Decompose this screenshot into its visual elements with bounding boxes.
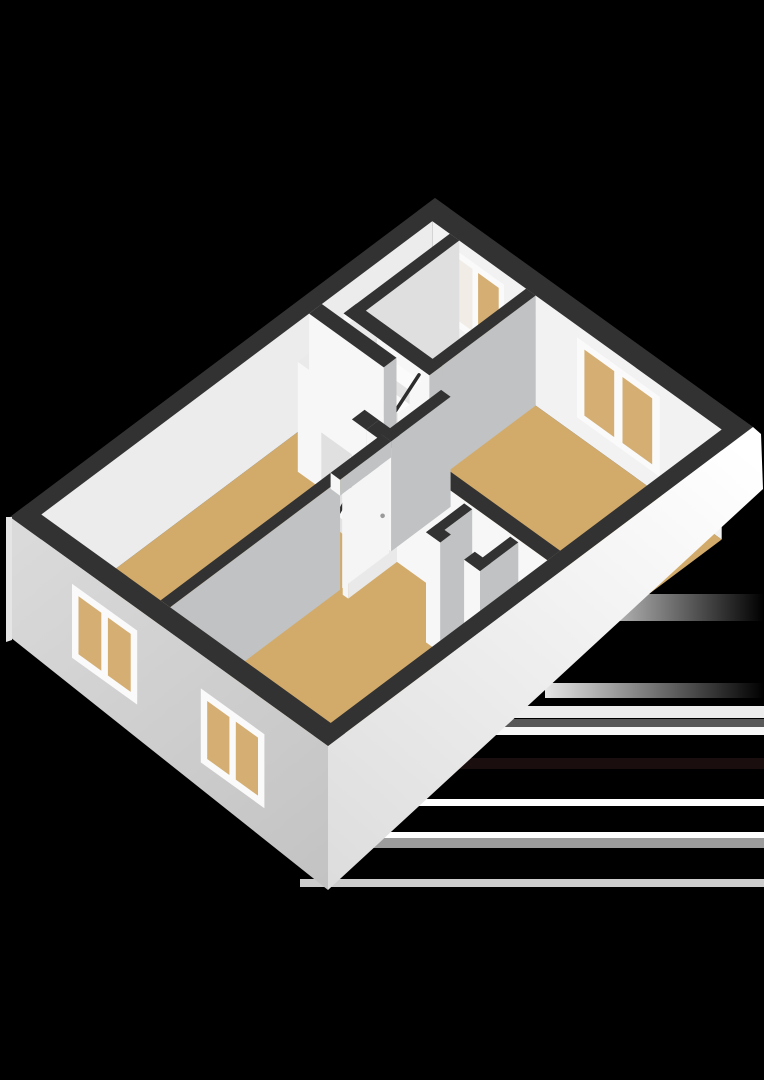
exterior-west-corner-edge [6, 517, 12, 642]
door-handle [380, 514, 385, 519]
closet-wall-front-a-sw-face [426, 532, 440, 652]
render-artifact-glow-2 [545, 683, 764, 698]
floorplan-3d-render [0, 0, 764, 1080]
floorplan-viewport [0, 0, 764, 1080]
render-artifact-stripe-8 [300, 879, 764, 887]
